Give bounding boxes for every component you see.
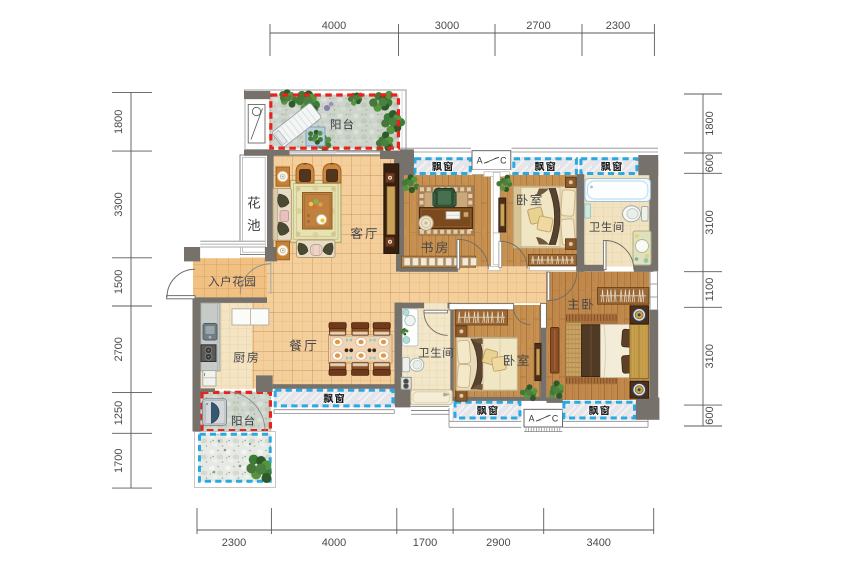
svg-text:4000: 4000 (322, 20, 346, 32)
svg-text:A: A (477, 155, 483, 165)
svg-text:3100: 3100 (704, 210, 716, 234)
svg-text:3100: 3100 (704, 344, 716, 368)
svg-text:2900: 2900 (486, 537, 510, 549)
svg-text:3000: 3000 (435, 20, 459, 32)
svg-text:1700: 1700 (413, 537, 437, 549)
svg-text:1700: 1700 (113, 448, 125, 472)
svg-text:C: C (500, 155, 507, 165)
svg-text:600: 600 (704, 154, 716, 172)
svg-text:2700: 2700 (526, 20, 550, 32)
svg-text:2300: 2300 (606, 20, 630, 32)
svg-text:A: A (529, 413, 535, 423)
svg-text:1800: 1800 (113, 110, 125, 134)
svg-text:600: 600 (704, 406, 716, 424)
svg-text:C: C (552, 413, 559, 423)
svg-text:3400: 3400 (586, 537, 610, 549)
svg-text:4000: 4000 (322, 537, 346, 549)
svg-text:1250: 1250 (113, 401, 125, 425)
svg-text:2700: 2700 (113, 337, 125, 361)
svg-text:2300: 2300 (222, 537, 246, 549)
svg-text:1100: 1100 (704, 278, 716, 302)
svg-text:1500: 1500 (113, 270, 125, 294)
svg-text:1800: 1800 (704, 111, 716, 135)
svg-text:3300: 3300 (113, 192, 125, 216)
